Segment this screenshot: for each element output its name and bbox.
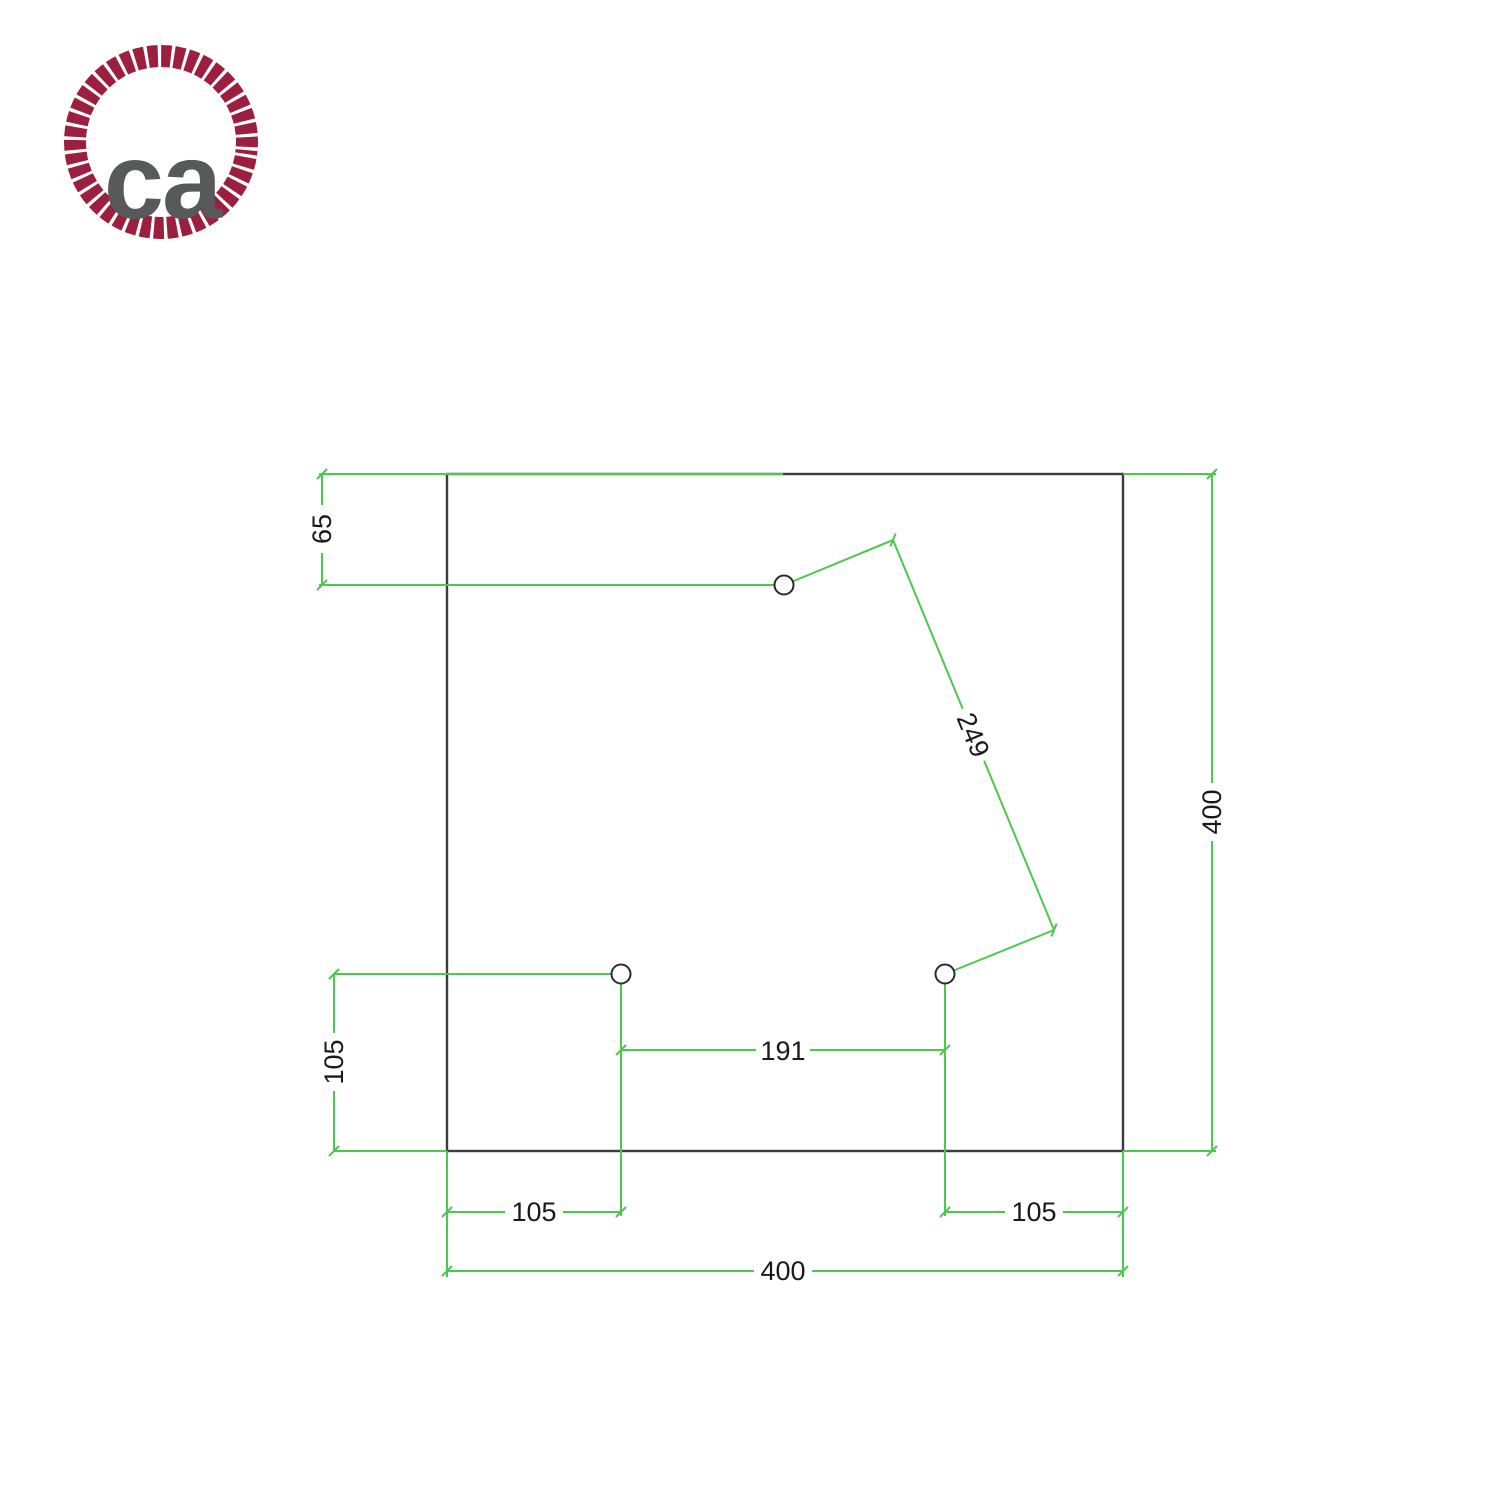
dim-label-105-bottom-left: 105 [511,1197,556,1227]
dim-label-400-right: 400 [1197,789,1227,834]
dimension-drawing: 65 400 105 191 105 105 [0,0,1500,1500]
dimension-ticks [317,469,1217,1276]
page: ca [0,0,1500,1500]
dim-label-191: 191 [760,1036,805,1066]
hole-bottom-left [612,965,631,984]
dimension-labels: 65 400 105 191 105 105 [307,505,1227,1286]
hole-bottom-right [936,965,955,984]
mounting-holes [612,576,955,984]
dim-label-65: 65 [307,514,337,544]
dim-label-105-bottom-right: 105 [1011,1197,1056,1227]
extension-line [945,930,1054,974]
hole-top [775,576,794,595]
dim-label-105-left: 105 [319,1039,349,1084]
dim-label-400-bottom: 400 [760,1256,805,1286]
extension-lines [319,474,1216,1277]
extension-line [784,540,893,585]
